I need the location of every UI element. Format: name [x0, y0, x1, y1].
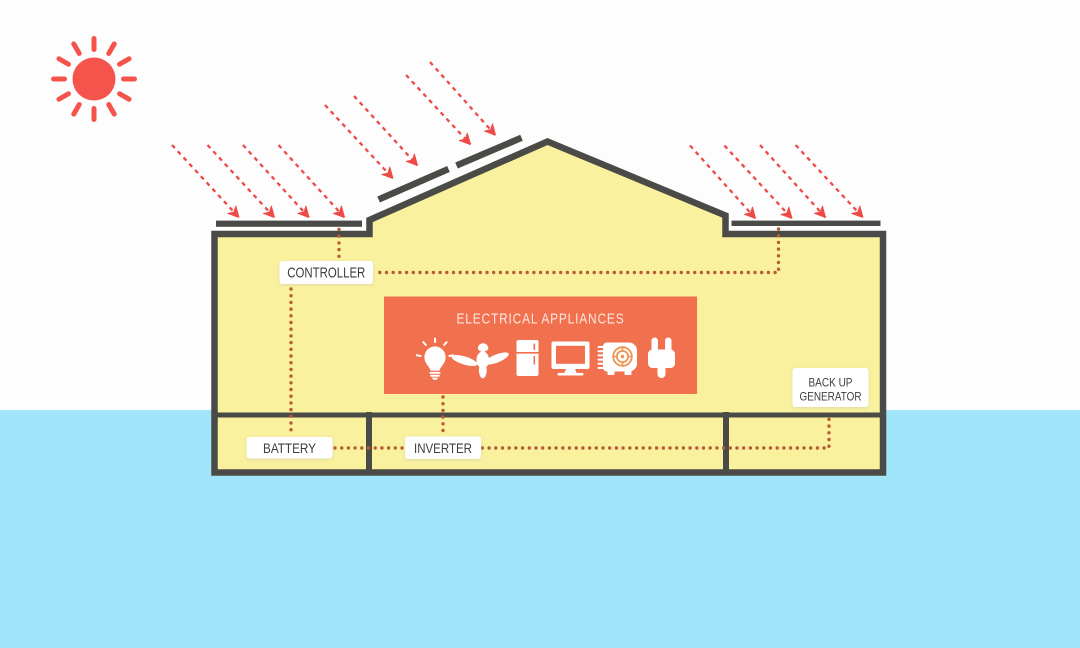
- svg-text:GENERATOR: GENERATOR: [800, 390, 862, 404]
- svg-text:ELECTRICAL APPLIANCES: ELECTRICAL APPLIANCES: [457, 312, 625, 328]
- svg-text:INVERTER: INVERTER: [414, 440, 472, 456]
- svg-text:BATTERY: BATTERY: [263, 440, 317, 456]
- svg-text:BACK UP: BACK UP: [809, 376, 853, 390]
- svg-text:CONTROLLER: CONTROLLER: [287, 266, 365, 282]
